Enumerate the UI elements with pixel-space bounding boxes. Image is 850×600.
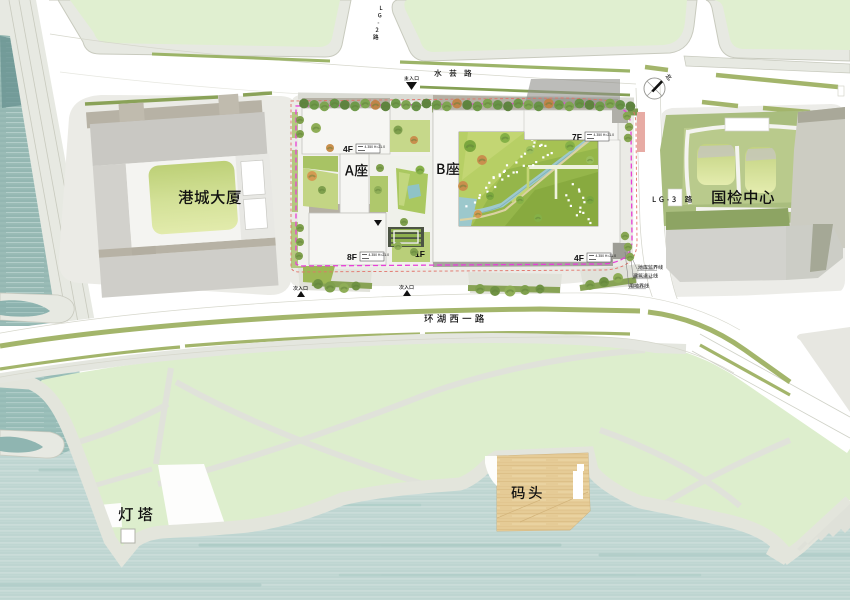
svg-text:4F: 4F xyxy=(343,144,353,154)
svg-text:4.350 H=21.0: 4.350 H=21.0 xyxy=(369,253,390,257)
svg-text:4F: 4F xyxy=(574,253,584,263)
svg-text:4.350 H=21.0: 4.350 H=21.0 xyxy=(594,133,615,137)
svg-text:8F: 8F xyxy=(347,252,357,262)
svg-text:4.350 H=21.0: 4.350 H=21.0 xyxy=(365,145,386,149)
svg-text:7F: 7F xyxy=(572,132,582,142)
svg-text:4.350 H=21.0: 4.350 H=21.0 xyxy=(596,254,617,258)
